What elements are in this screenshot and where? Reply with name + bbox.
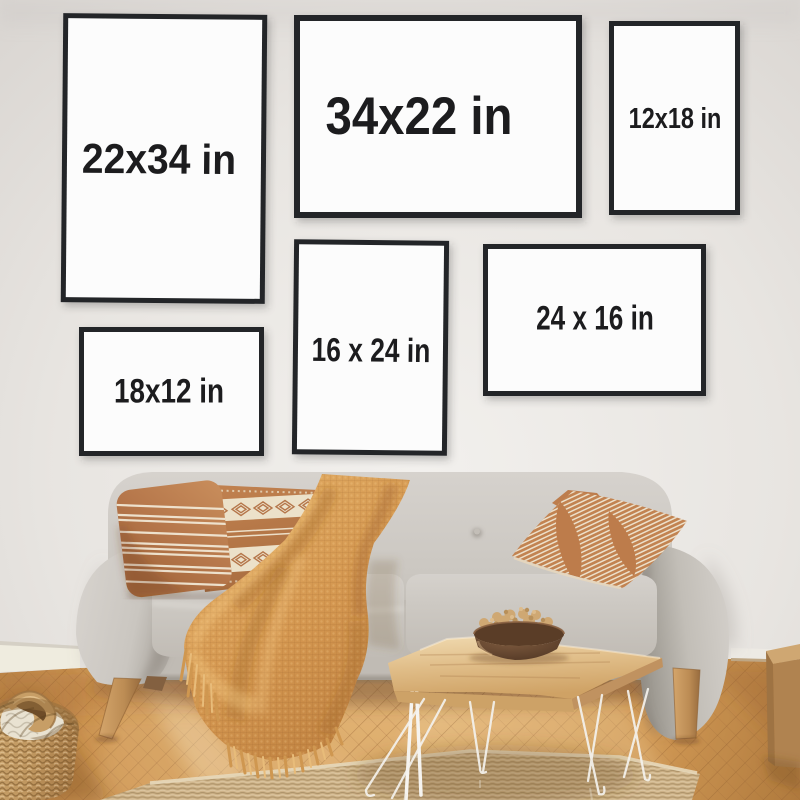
svg-text:24 x 16 in: 24 x 16 in [536,301,654,338]
svg-text:34x22 in: 34x22 in [326,86,513,145]
svg-text:12x18 in: 12x18 in [629,102,722,135]
svg-text:18x12 in: 18x12 in [114,372,224,410]
svg-text:22x34 in: 22x34 in [82,134,237,183]
svg-text:16 x 24 in: 16 x 24 in [311,332,430,370]
